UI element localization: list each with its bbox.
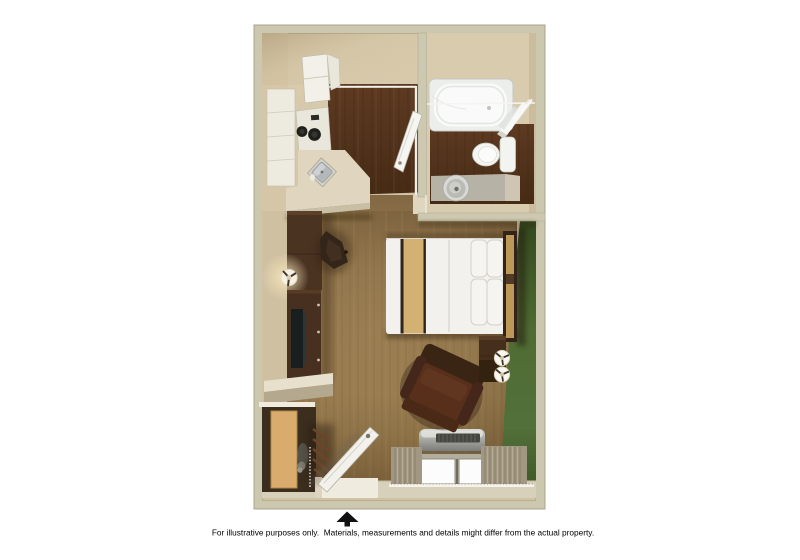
svg-text:For illustrative purposes only: For illustrative purposes only. Material… — [212, 528, 594, 538]
